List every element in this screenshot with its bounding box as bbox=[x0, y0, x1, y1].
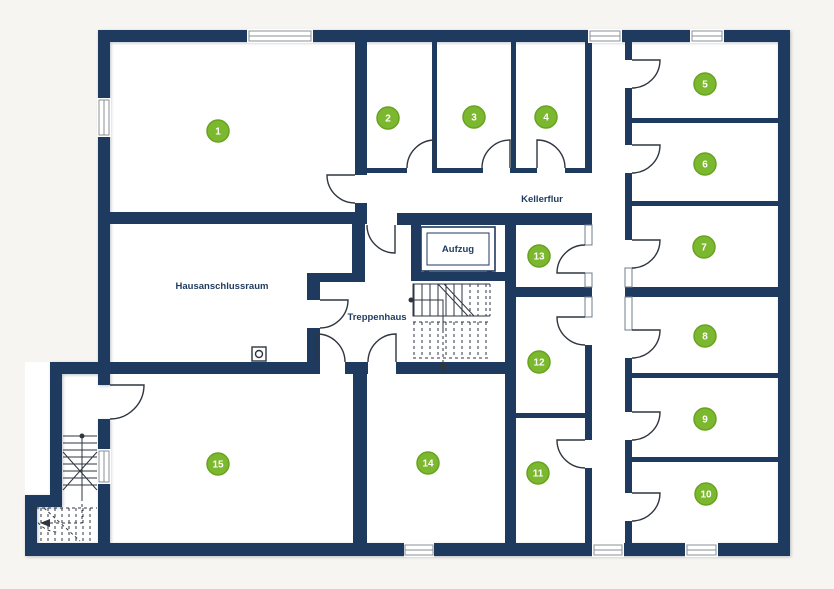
room-number: 5 bbox=[702, 80, 708, 91]
window-left-room15 bbox=[97, 449, 111, 484]
room-marker-9: 9 bbox=[694, 408, 716, 430]
room-number: 14 bbox=[422, 459, 434, 470]
room-number: 10 bbox=[700, 490, 712, 501]
hausanschlussraum-label: Hausanschlussraum bbox=[176, 281, 269, 292]
elevator: Aufzug bbox=[421, 227, 495, 271]
window-top-mid bbox=[588, 29, 622, 43]
window-left-room1 bbox=[97, 98, 111, 137]
elevator-label: Aufzug bbox=[442, 244, 474, 255]
window-top-left bbox=[247, 29, 313, 43]
room-marker-7: 7 bbox=[693, 236, 715, 258]
room-number: 13 bbox=[533, 252, 545, 263]
window-top-right bbox=[690, 29, 724, 43]
window-bottom-room14 bbox=[404, 542, 434, 557]
room-number: 9 bbox=[702, 415, 708, 426]
room-number: 4 bbox=[543, 113, 549, 124]
room-marker-1: 1 bbox=[207, 120, 229, 142]
room-marker-11: 11 bbox=[527, 462, 549, 484]
room-number: 12 bbox=[533, 358, 545, 369]
room-marker-13: 13 bbox=[528, 245, 550, 267]
room-marker-3: 3 bbox=[463, 106, 485, 128]
window-bottom-room10 bbox=[685, 542, 718, 557]
room-marker-15: 15 bbox=[207, 453, 229, 475]
treppenhaus-label: Treppenhaus bbox=[347, 312, 406, 323]
room-number: 11 bbox=[533, 469, 544, 480]
room-marker-10: 10 bbox=[695, 483, 717, 505]
room-number: 7 bbox=[701, 243, 707, 254]
room-number: 8 bbox=[702, 332, 708, 343]
room-number: 1 bbox=[215, 127, 221, 138]
room-marker-5: 5 bbox=[694, 73, 716, 95]
room-number: 6 bbox=[702, 160, 708, 171]
drain-symbol bbox=[252, 347, 266, 361]
floor-plan: Aufzug Kellerflur Treppenhaus Hausanschl… bbox=[0, 0, 834, 589]
room-marker-14: 14 bbox=[417, 452, 439, 474]
room-marker-2: 2 bbox=[377, 107, 399, 129]
window-bottom-corridor bbox=[592, 542, 624, 557]
room-marker-12: 12 bbox=[528, 351, 550, 373]
room-number: 2 bbox=[385, 114, 391, 125]
room-number: 3 bbox=[471, 113, 477, 124]
room-number: 15 bbox=[212, 460, 224, 471]
room-marker-8: 8 bbox=[694, 325, 716, 347]
kellerflur-label: Kellerflur bbox=[521, 194, 563, 205]
room-marker-6: 6 bbox=[694, 153, 716, 175]
room-marker-4: 4 bbox=[535, 106, 557, 128]
